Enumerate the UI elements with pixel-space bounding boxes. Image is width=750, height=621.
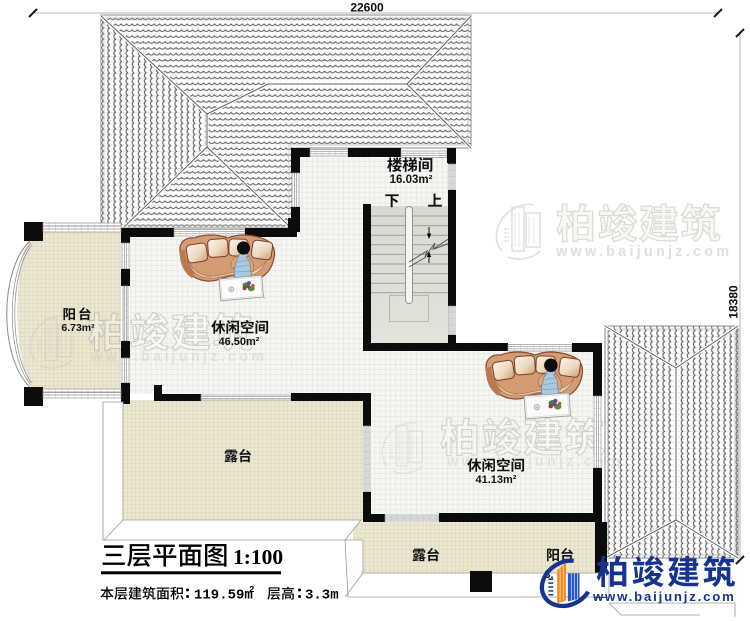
svg-text:16.03m²: 16.03m² [390, 174, 433, 186]
svg-text:www.baijunjz.com: www.baijunjz.com [592, 589, 736, 604]
svg-text:www.baijunjz.com: www.baijunjz.com [90, 349, 267, 365]
svg-text:www.baijunjz.com: www.baijunjz.com [555, 244, 732, 260]
svg-text:119.59m: 119.59m [194, 588, 253, 604]
svg-text:6.73m²: 6.73m² [61, 322, 95, 334]
svg-text:46.50m²: 46.50m² [219, 336, 260, 348]
svg-text:3.3m: 3.3m [305, 588, 339, 604]
svg-text:41.13m²: 41.13m² [476, 474, 517, 486]
svg-text:22600: 22600 [350, 1, 384, 15]
svg-text:18380: 18380 [727, 285, 741, 319]
svg-text:1:100: 1:100 [233, 545, 283, 569]
svg-text:2: 2 [249, 585, 254, 595]
